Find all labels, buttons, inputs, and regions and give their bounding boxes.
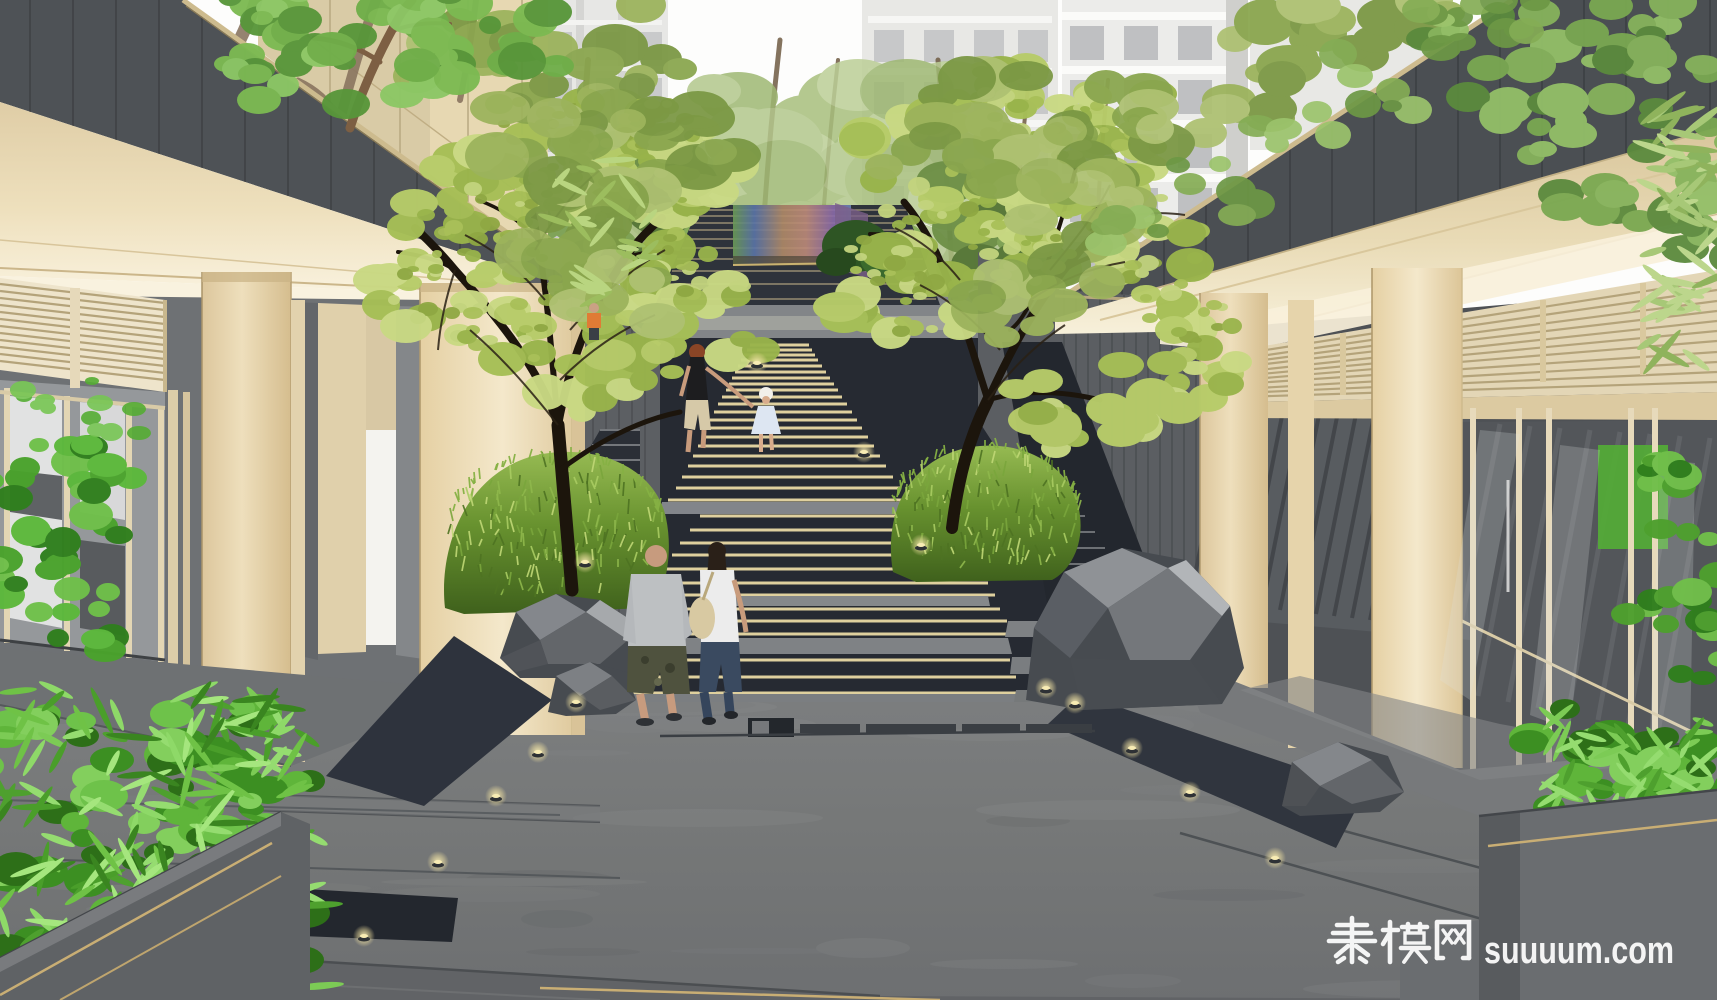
svg-text:suuuum.com: suuuum.com <box>1484 930 1674 972</box>
